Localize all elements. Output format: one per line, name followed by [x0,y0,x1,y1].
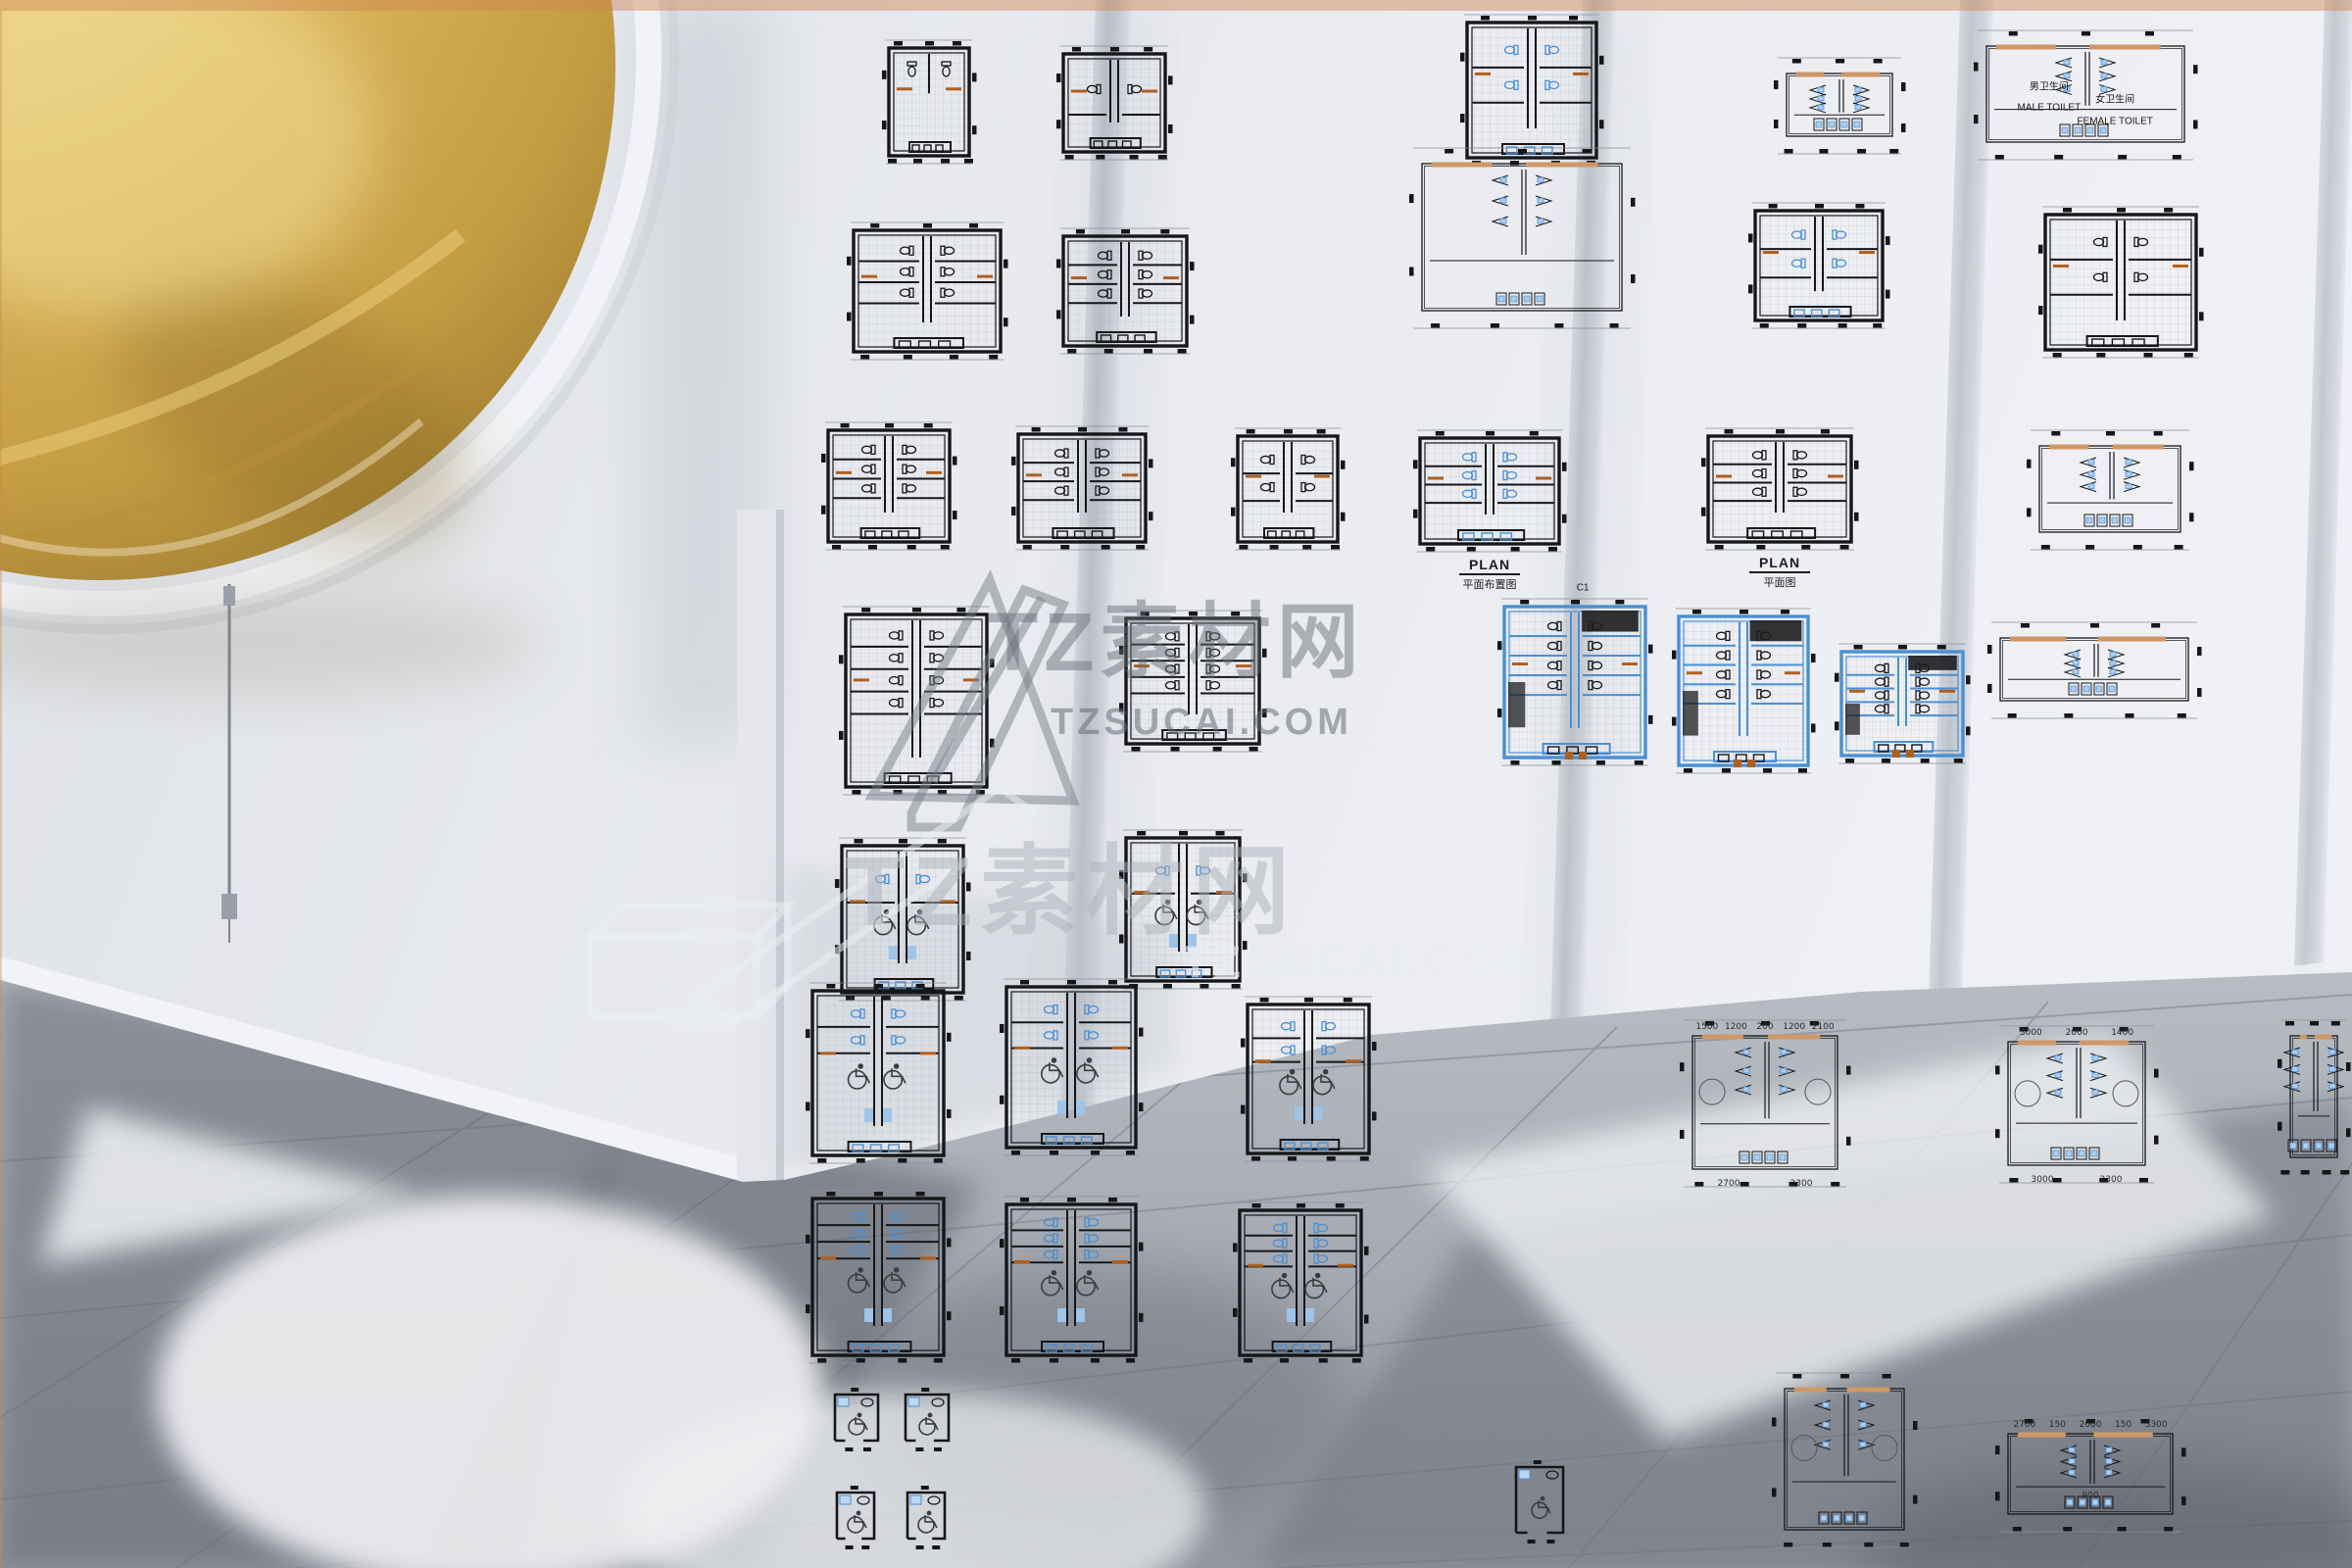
dimension-label: 900 [2082,1492,2098,1501]
floorplan-thumbnail [901,1486,952,1550]
plan-caption-title: PLAN [1749,555,1810,573]
plan-caption-subtitle: 平面图 [1711,574,1848,590]
dimension-label: 1200 [1783,1022,1805,1032]
floorplan-thumbnail [1458,14,1605,167]
floorplan-thumbnail [2276,1019,2352,1176]
table-gridline [0,11,2,1568]
dimension-label: 2700 [1718,1179,1740,1189]
floorplan-thumbnail [1407,147,1637,329]
watermark-brand-text: TZ素材网 [988,576,1365,695]
wheelchair-icon [1532,1496,1550,1518]
plan-room-label: FEMALE TOILET [2077,116,2152,126]
floorplan-thumbnail [1009,425,1154,551]
floorplan-thumbnail [2036,206,2205,359]
floorplan-thumbnail: 男卫生间MALE TOILET女卫生间FEMALE TOILET [1972,29,2199,161]
floorplan-thumbnail: 30002000140030003300 [1993,1025,2160,1184]
floorplan-thumbnail [1772,57,1907,155]
watermark-domain-text: TZSUCAI.COM [1182,937,1542,988]
dimension-label: 150 [2049,1420,2066,1430]
floorplan-thumbnail: 270015020001503300900 [1993,1417,2187,1533]
plan-caption: PLAN平面图 [1711,555,1848,590]
dimension-label: 3300 [1790,1179,1813,1189]
floorplan-thumbnail [1231,1201,1370,1364]
dimension-label: 1200 [1725,1022,1747,1032]
dimension-label: 3000 [2020,1028,2042,1038]
dimension-label: 1500 [1695,1022,1718,1032]
floorplan-thumbnail [828,1388,885,1452]
dimension-label: 2000 [2066,1028,2088,1038]
floorplan-thumbnail [1054,227,1196,355]
floorplan-thumbnail [1770,1372,1919,1548]
dimension-label: 3000 [2032,1175,2054,1185]
floorplan-thumbnail [1239,996,1378,1162]
floorplan-thumbnail [1229,427,1347,551]
table-gridline [0,10,2352,12]
dimension-label: 1400 [2111,1028,2133,1038]
dimension-label: 3300 [2145,1420,2168,1430]
dimension-label: 3300 [2100,1175,2123,1185]
dimension-label: 2700 [2013,1420,2035,1430]
plan-room-label: 女卫生间 [2095,95,2134,106]
floorplan-thumbnail [830,1486,881,1550]
wheelchair-icon [849,1413,867,1435]
floorplan-thumbnail [819,421,958,551]
floorplan-thumbnail [1509,1460,1570,1544]
watermark: TZ素材网 TZSUCAI.COM [578,745,1578,1009]
wheelchair-icon [918,1511,937,1533]
dimension-label: 150 [2115,1420,2131,1430]
floorplan-thumbnail: PLAN平面布置图 [1411,429,1568,553]
floorplan-thumbnail [1833,643,1972,764]
floorplan-thumbnail [845,221,1009,361]
floorplan-thumbnail [880,39,978,165]
watermark-brand-text: TZ素材网 [845,811,1298,954]
watermark-domain-text: TZSUCAI.COM [1051,702,1352,744]
floorplan-thumbnail [899,1388,955,1452]
plan-room-label: 男卫生间 [2030,81,2069,92]
wheelchair-icon [848,1511,866,1533]
floorplan-thumbnail [998,1196,1145,1364]
plan-room-label: MALE TOILET [2018,103,2082,114]
floorplan-thumbnail [804,1190,953,1364]
wheelchair-icon [919,1413,938,1435]
floorplan-thumbnail [1746,202,1891,329]
dimension-label: 2000 [2080,1420,2102,1430]
floorplan-thumbnail [1054,45,1174,161]
floorplan-thumbnail [1985,621,2203,719]
page: 普通型无障碍1厕位A13.8m²B11.7m²AB男卫生间MALE TOILET… [0,0,2352,1568]
floorplan-thumbnail [1670,608,1817,774]
floorplan-thumbnail: PLAN平面图 [1699,427,1860,551]
dimension-label: 200 [1756,1022,1773,1032]
dimension-label: 2100 [1812,1022,1835,1032]
floorplan-thumbnail [2025,429,2195,551]
floorplan-thumbnail: 150012002001200210027003300 [1678,1019,1852,1188]
